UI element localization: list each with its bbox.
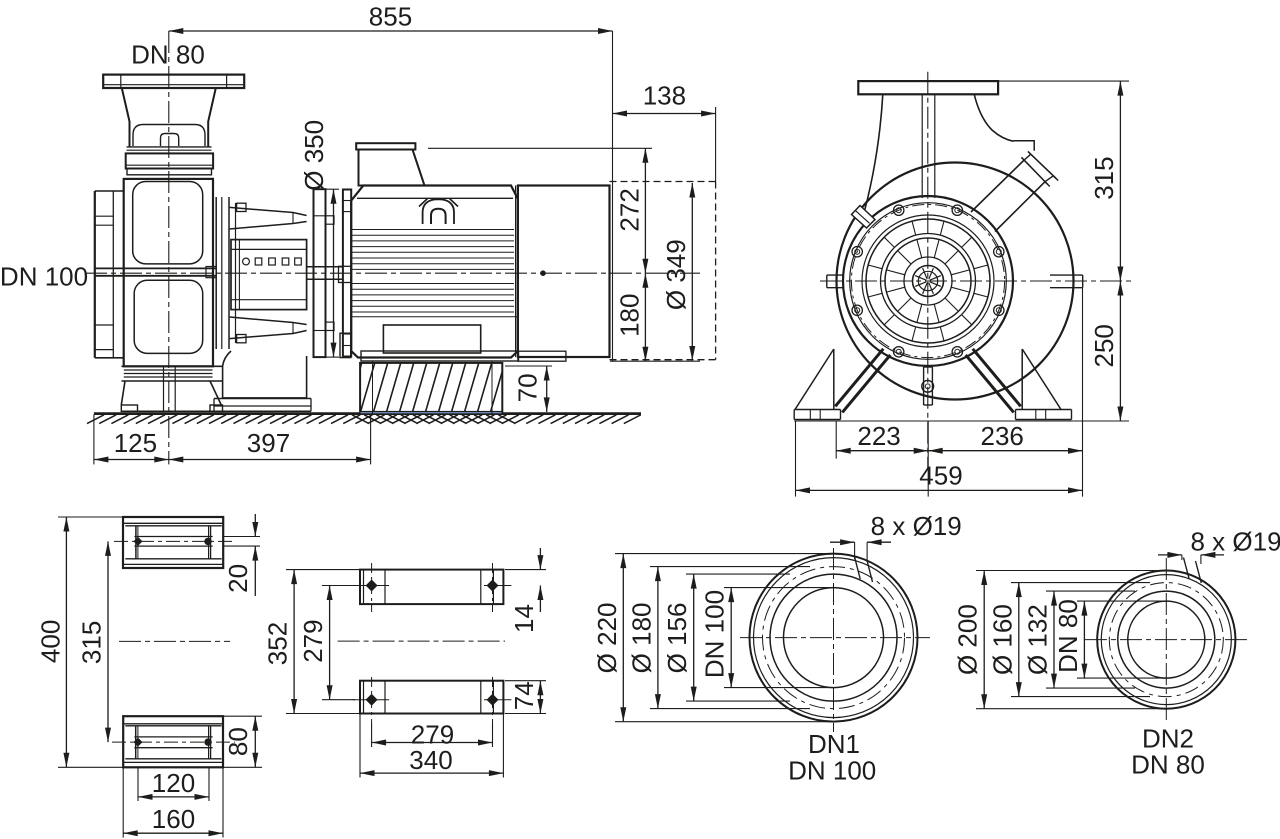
svg-text:74: 74 xyxy=(509,681,539,710)
svg-text:Ø 349: Ø 349 xyxy=(661,239,691,310)
svg-text:80: 80 xyxy=(223,727,253,756)
svg-text:340: 340 xyxy=(409,745,452,775)
svg-text:DN 80: DN 80 xyxy=(1053,599,1083,673)
svg-text:14: 14 xyxy=(509,604,539,633)
svg-text:223: 223 xyxy=(857,421,900,451)
svg-text:DN 80: DN 80 xyxy=(1131,749,1205,779)
svg-text:459: 459 xyxy=(919,460,962,490)
svg-text:Ø 160: Ø 160 xyxy=(987,604,1017,675)
svg-text:400: 400 xyxy=(35,620,65,663)
svg-text:160: 160 xyxy=(152,804,195,834)
svg-text:279: 279 xyxy=(298,619,328,662)
svg-text:Ø 180: Ø 180 xyxy=(626,602,656,673)
svg-text:125: 125 xyxy=(114,428,157,458)
svg-text:138: 138 xyxy=(643,81,686,111)
svg-text:Ø 350: Ø 350 xyxy=(299,120,329,191)
svg-text:315: 315 xyxy=(77,621,107,664)
svg-text:DN1: DN1 xyxy=(808,729,860,759)
svg-text:250: 250 xyxy=(1089,324,1119,367)
svg-text:315: 315 xyxy=(1089,156,1119,199)
svg-text:20: 20 xyxy=(223,564,253,593)
svg-text:352: 352 xyxy=(263,622,293,665)
svg-text:DN 80: DN 80 xyxy=(131,40,205,70)
svg-text:Ø 220: Ø 220 xyxy=(592,602,622,673)
svg-text:397: 397 xyxy=(247,428,290,458)
svg-text:8 x Ø19: 8 x Ø19 xyxy=(1191,527,1280,557)
svg-text:120: 120 xyxy=(152,768,195,798)
svg-text:DN 100: DN 100 xyxy=(700,590,730,678)
svg-text:855: 855 xyxy=(369,2,412,32)
svg-text:Ø 200: Ø 200 xyxy=(953,604,983,675)
svg-text:180: 180 xyxy=(615,294,645,337)
svg-text:272: 272 xyxy=(615,188,645,231)
svg-text:236: 236 xyxy=(981,421,1024,451)
svg-text:8 x Ø19: 8 x Ø19 xyxy=(871,511,962,541)
svg-text:DN 100: DN 100 xyxy=(788,756,876,786)
svg-text:Ø 132: Ø 132 xyxy=(1023,604,1053,675)
svg-text:70: 70 xyxy=(513,373,543,402)
svg-text:Ø 156: Ø 156 xyxy=(662,602,692,673)
svg-text:DN 100: DN 100 xyxy=(0,261,88,291)
